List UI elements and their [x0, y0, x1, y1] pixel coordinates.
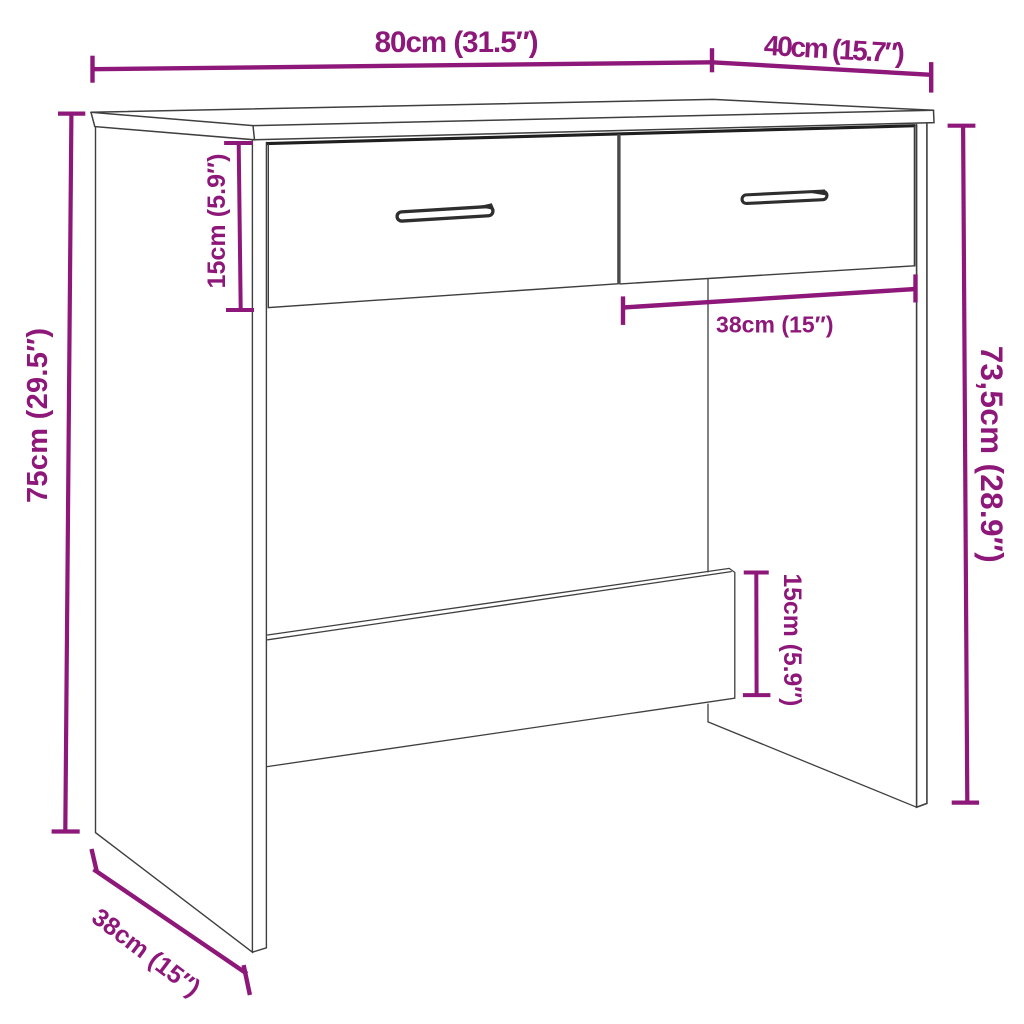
- svg-text:15cm (5.9″): 15cm (5.9″): [203, 154, 231, 289]
- svg-text:75cm (29.5″): 75cm (29.5″): [22, 328, 54, 503]
- svg-text:73,5cm (28.9″): 73,5cm (28.9″): [974, 346, 1010, 563]
- svg-text:38cm (15″): 38cm (15″): [716, 312, 834, 338]
- svg-text:15cm (5.9″): 15cm (5.9″): [778, 573, 805, 706]
- svg-text:80cm (31.5″): 80cm (31.5″): [375, 26, 539, 59]
